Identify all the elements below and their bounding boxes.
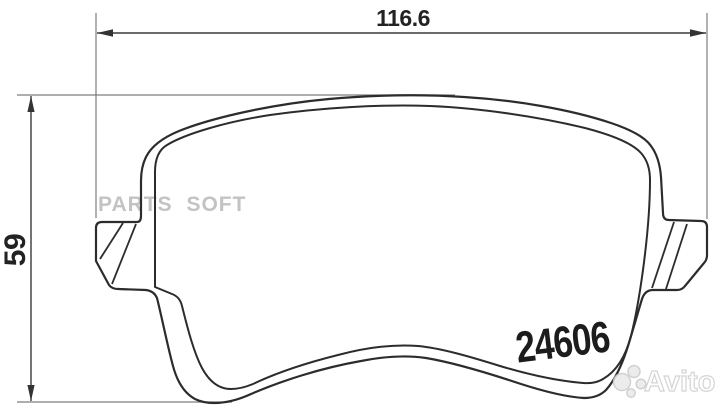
avito-watermark-label: Avito [644,366,715,399]
arrowhead-left-icon [97,29,113,37]
pad-outer-contour [96,95,707,403]
avito-dot-top [628,366,640,378]
arrowhead-right-icon [690,29,706,37]
left-ear-chamfer-line-1 [100,223,123,259]
brake-pad-drawing-canvas [0,0,720,408]
avito-dot-large [614,374,631,391]
right-ear-chamfer-line-1 [652,222,674,288]
arrowhead-up-icon [27,96,34,112]
avito-dot-bottom [627,389,635,397]
width-dimension-label: 116.6 [348,5,458,32]
height-dimension-label: 59 [0,215,32,285]
arrowhead-down-icon [27,385,34,401]
technical-drawing-image: PARTS SOFT 116.6 59 24606 [0,0,720,408]
